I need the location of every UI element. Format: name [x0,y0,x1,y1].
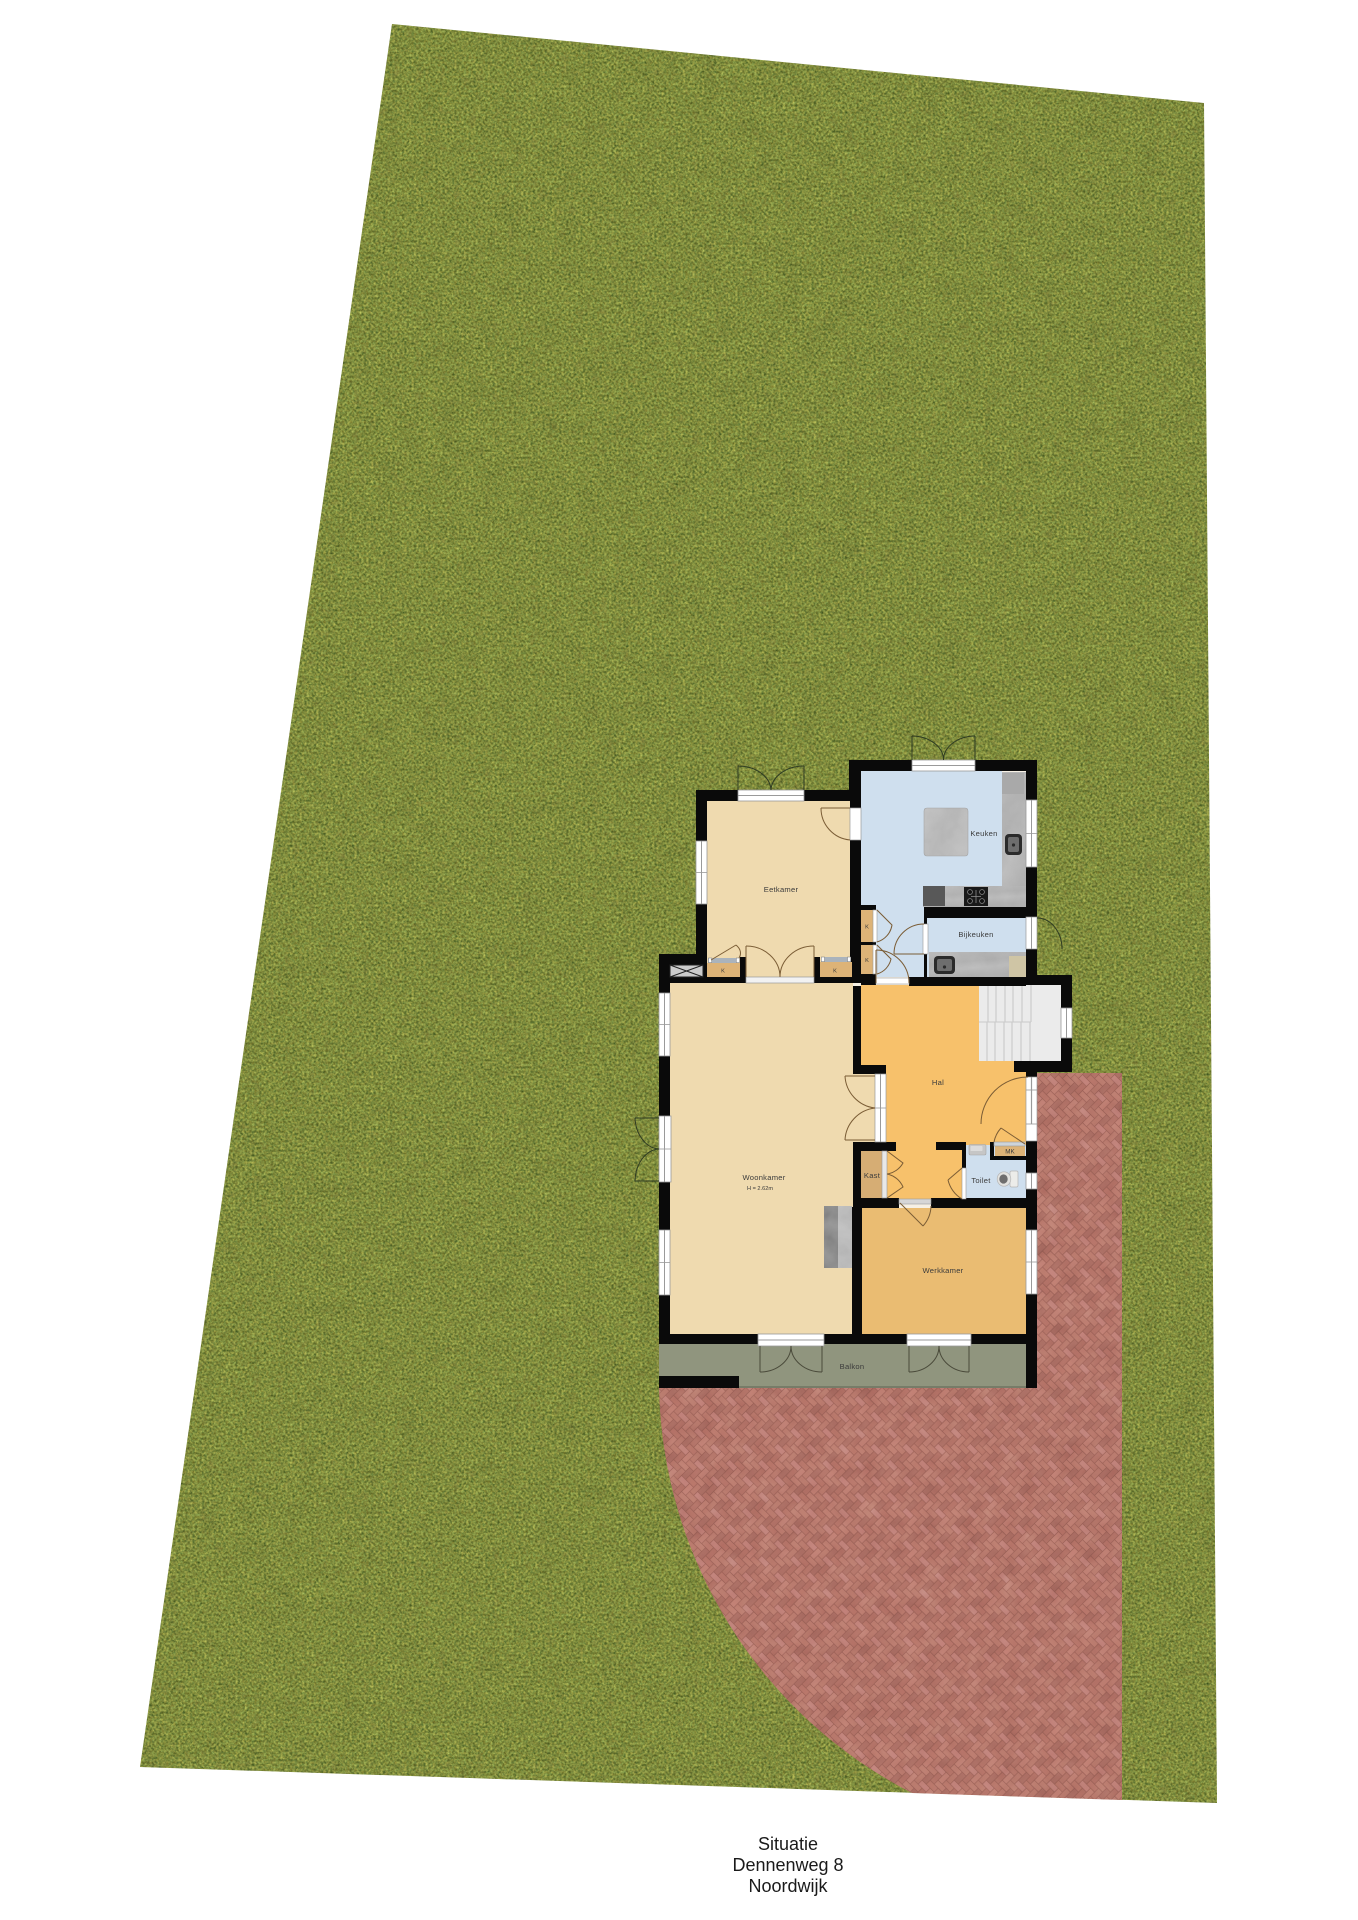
svg-text:Noordwijk: Noordwijk [748,1876,828,1896]
svg-text:K: K [833,969,837,975]
svg-text:Hal: Hal [932,1078,944,1087]
svg-text:Eetkamer: Eetkamer [764,885,799,894]
svg-text:Bijkeuken: Bijkeuken [958,930,993,939]
svg-text:Dennenweg 8: Dennenweg 8 [732,1855,843,1875]
svg-text:Keuken: Keuken [970,829,997,838]
svg-text:Balkon: Balkon [840,1362,865,1371]
svg-text:Situatie: Situatie [758,1834,818,1854]
svg-text:Kast: Kast [864,1171,881,1180]
svg-text:MK: MK [1005,1149,1015,1156]
svg-text:K: K [865,925,869,931]
svg-text:Werkkamer: Werkkamer [923,1266,964,1275]
svg-text:Woonkamer: Woonkamer [742,1173,785,1182]
svg-text:K: K [865,958,869,964]
svg-text:H = 2.62m: H = 2.62m [747,1186,773,1192]
svg-text:K: K [721,969,725,975]
svg-text:Toilet: Toilet [971,1176,991,1185]
